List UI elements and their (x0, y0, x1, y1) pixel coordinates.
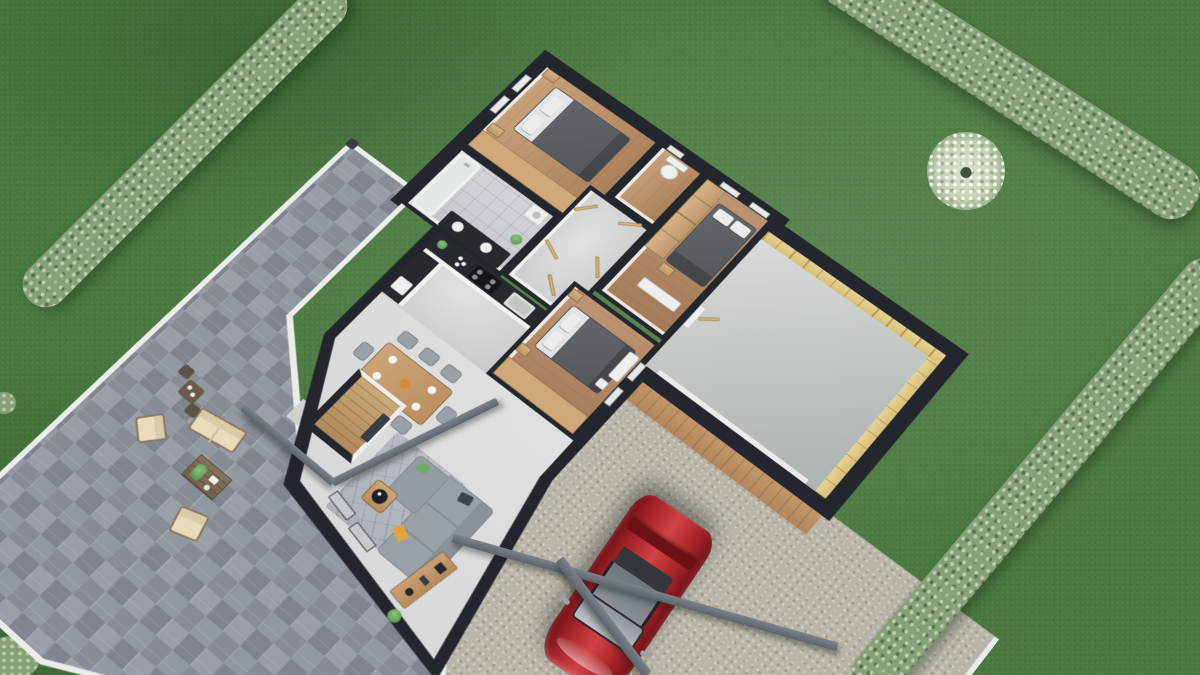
open-door[interactable] (595, 257, 599, 278)
blossom-tree[interactable] (927, 132, 1005, 210)
garage-yellow-wall-east (815, 357, 939, 499)
washer[interactable] (523, 203, 550, 226)
outdoor-armchair[interactable] (135, 413, 167, 443)
floor-plan-render-scene (0, 0, 1200, 675)
dishwasher (390, 275, 414, 296)
nightstand[interactable] (541, 68, 561, 84)
nightstand[interactable] (515, 342, 533, 357)
garage-yellow-wall-north (761, 231, 946, 364)
open-door[interactable] (548, 274, 556, 296)
open-door[interactable] (618, 222, 642, 227)
plant (435, 238, 449, 250)
garage-door-leaf[interactable] (698, 317, 719, 321)
open-door[interactable] (545, 239, 559, 259)
open-door[interactable] (574, 205, 598, 211)
nightstand[interactable] (567, 288, 584, 303)
double-bed[interactable] (533, 304, 637, 394)
bench[interactable] (636, 277, 681, 313)
bathtub[interactable] (408, 150, 484, 219)
plant[interactable] (508, 232, 525, 247)
